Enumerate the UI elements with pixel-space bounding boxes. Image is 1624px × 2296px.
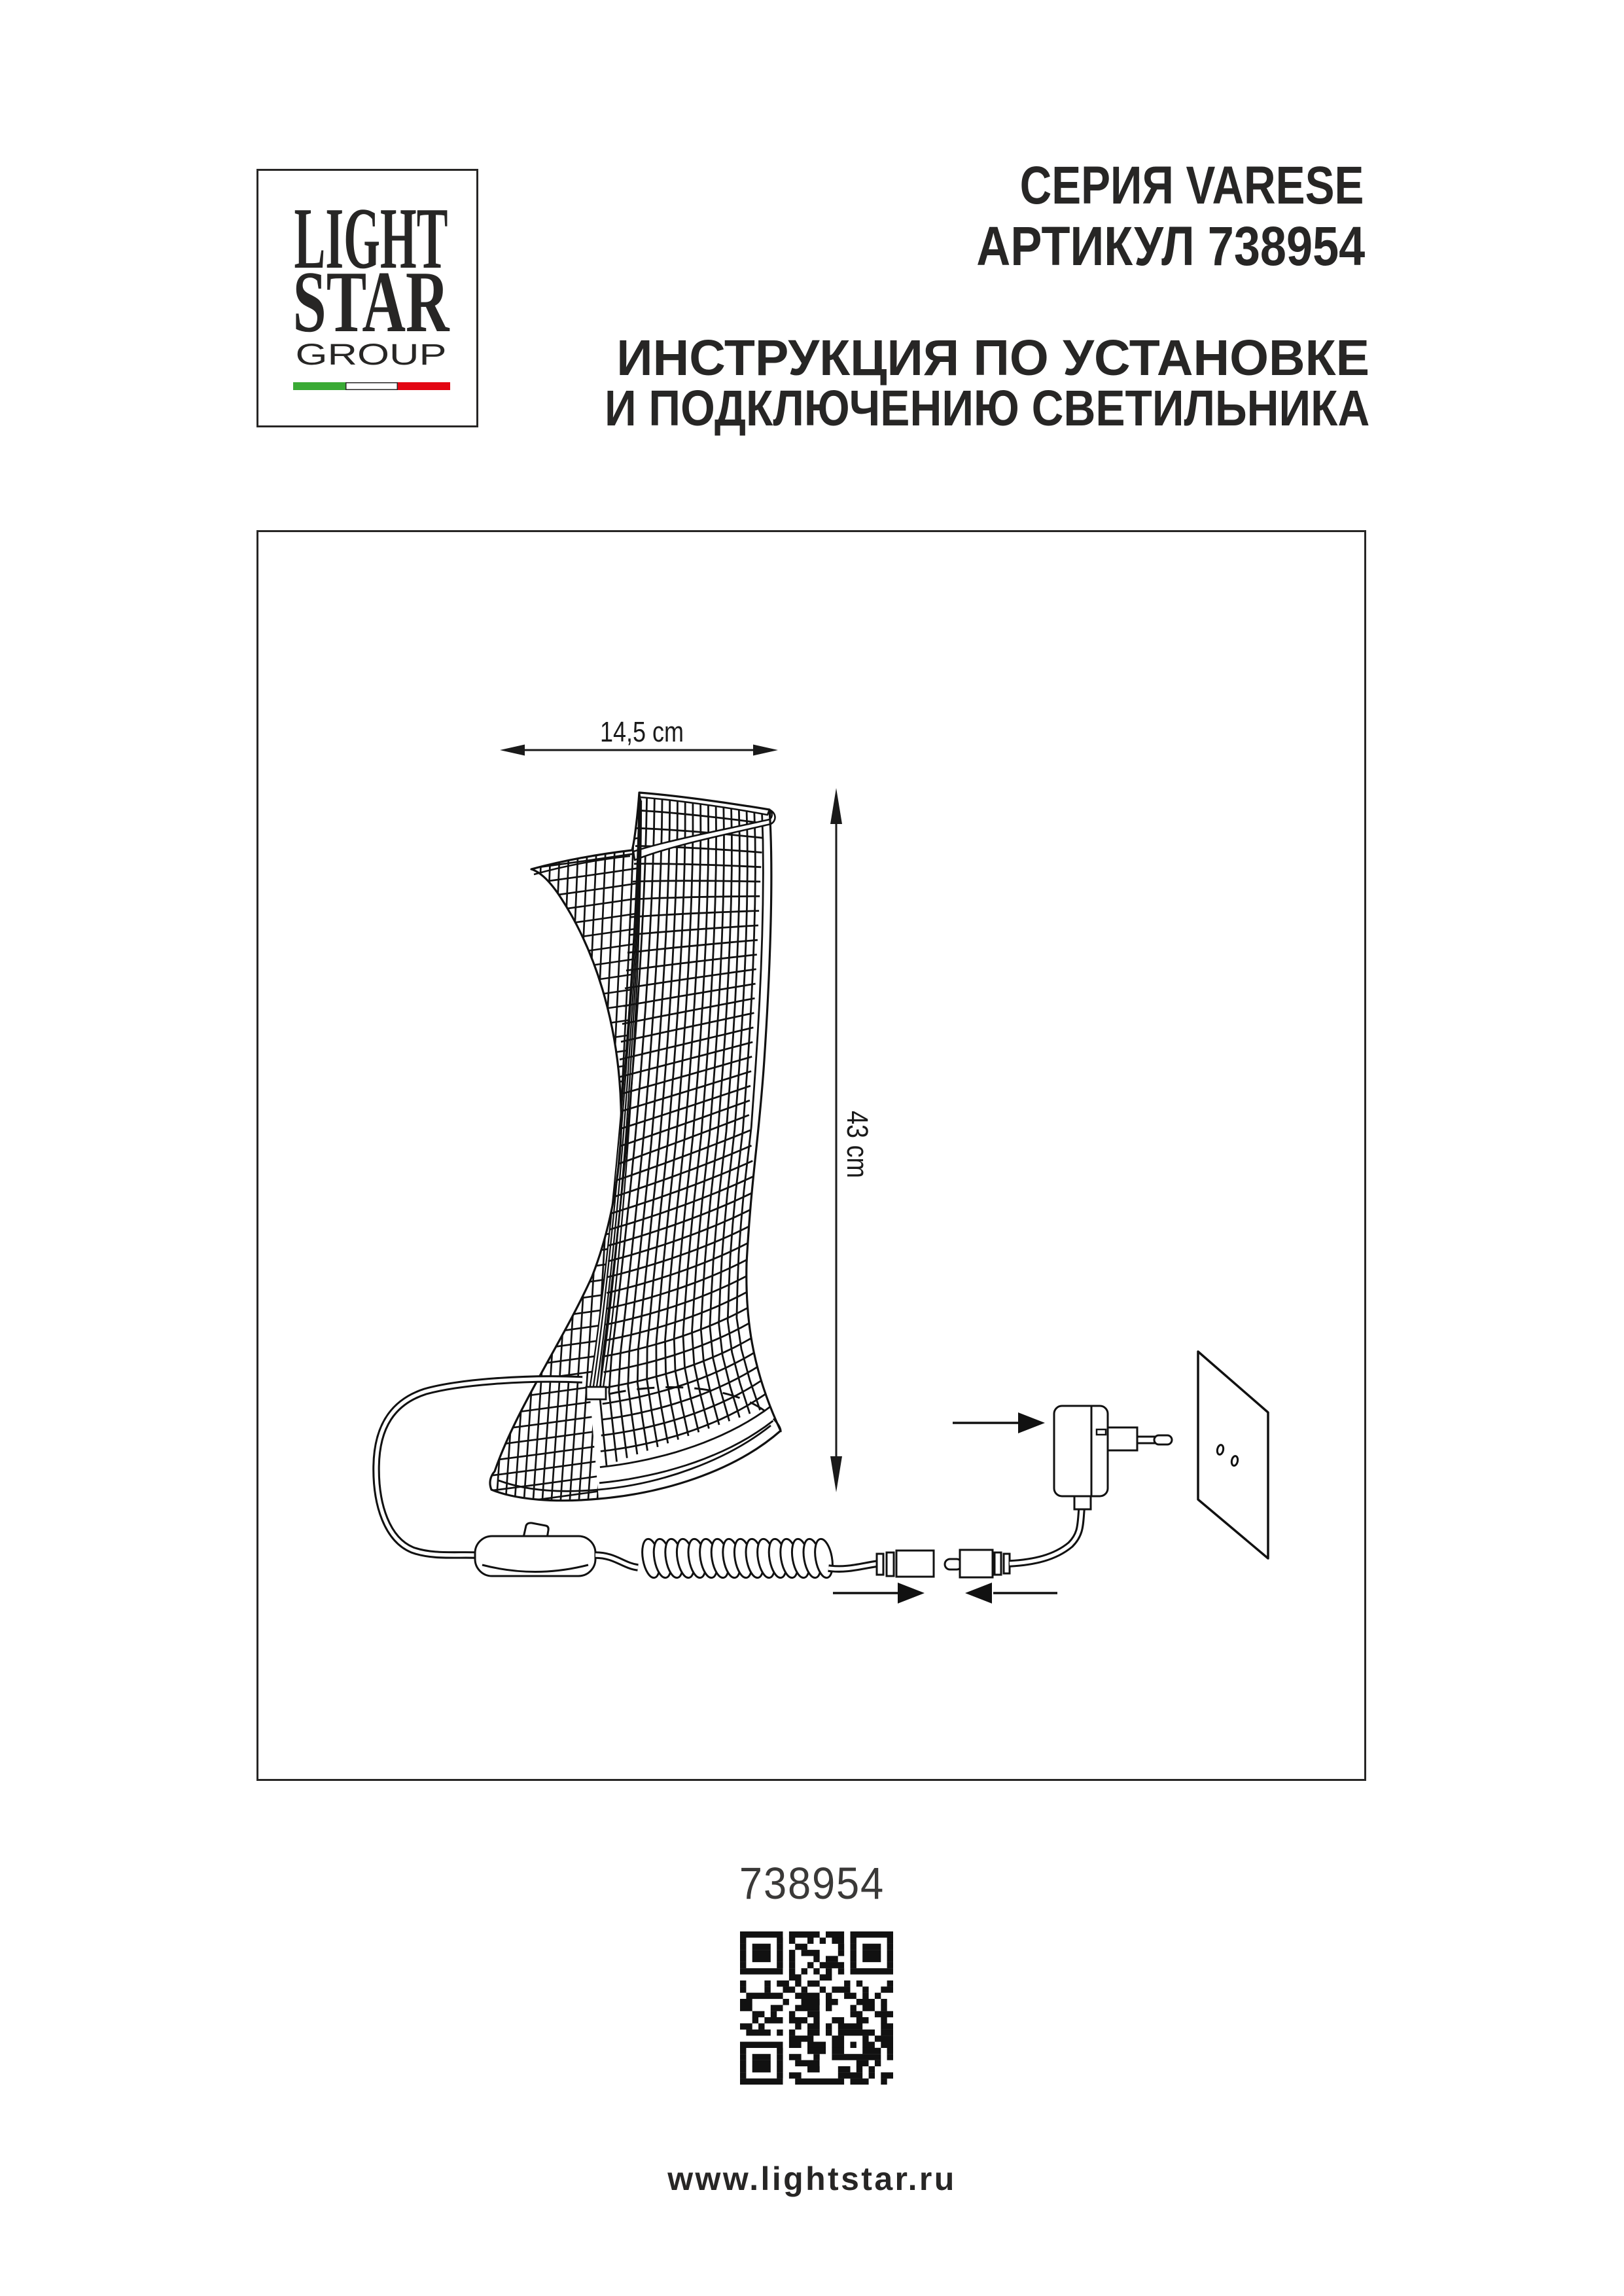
- svg-text:14,5 cm: 14,5 cm: [600, 716, 684, 748]
- svg-text:STAR: STAR: [293, 253, 450, 350]
- svg-text:GROUP: GROUP: [296, 338, 447, 371]
- svg-text:43 cm: 43 cm: [841, 1111, 874, 1178]
